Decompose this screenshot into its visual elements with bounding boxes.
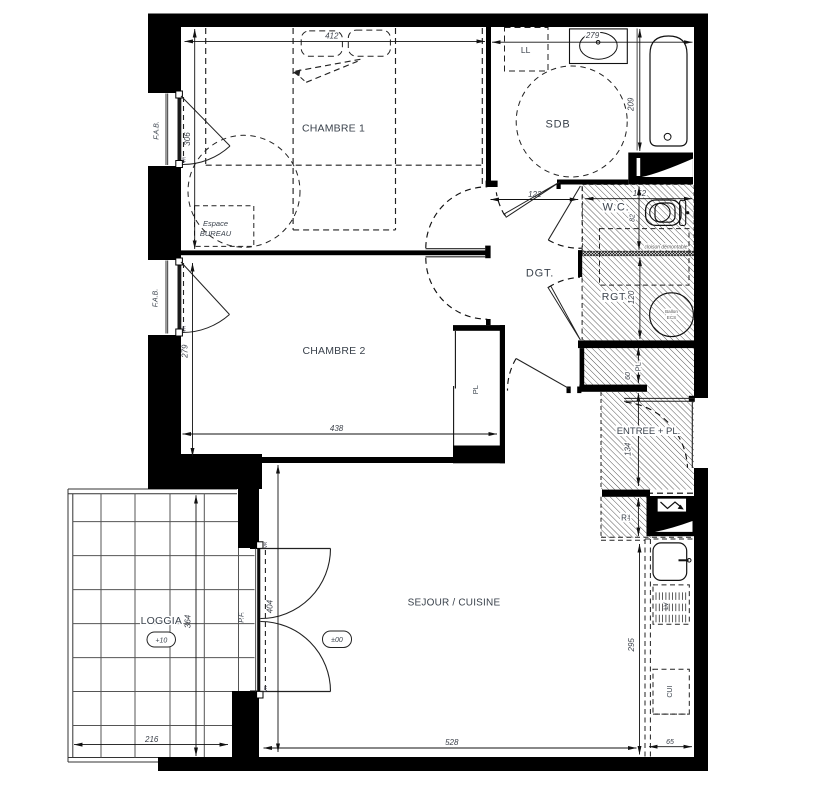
svg-text:60: 60: [625, 372, 632, 380]
svg-text:VR: VR: [182, 325, 187, 332]
svg-text:279: 279: [181, 344, 190, 359]
svg-text:209: 209: [626, 97, 635, 112]
svg-text:R: R: [621, 514, 627, 523]
svg-text:82: 82: [630, 214, 637, 222]
svg-text:VR: VR: [263, 541, 268, 548]
svg-text:LL: LL: [521, 45, 531, 55]
svg-text:PL: PL: [634, 362, 643, 371]
svg-text:412: 412: [325, 31, 339, 40]
svg-text:65: 65: [666, 739, 674, 746]
svg-text:W.C.: W.C.: [602, 202, 629, 214]
svg-text:122: 122: [528, 190, 542, 199]
svg-text:+10: +10: [155, 637, 167, 644]
svg-text:528: 528: [445, 738, 459, 747]
svg-text:CHAMBRE 1: CHAMBRE 1: [302, 123, 365, 135]
svg-text:216: 216: [144, 735, 159, 744]
svg-text:SEJOUR / CUISINE: SEJOUR / CUISINE: [408, 598, 501, 609]
svg-text:LOGGIA: LOGGIA: [141, 615, 182, 627]
svg-text:ECS: ECS: [667, 315, 676, 320]
svg-text:PL: PL: [471, 385, 480, 394]
svg-text:SDB: SDB: [545, 119, 570, 131]
svg-text:LV: LV: [663, 602, 670, 610]
svg-text:404: 404: [265, 599, 274, 613]
svg-text:±00: ±00: [331, 637, 343, 644]
svg-text:364: 364: [184, 614, 193, 628]
svg-text:Ballon: Ballon: [665, 309, 678, 314]
svg-text:RGT: RGT: [602, 291, 627, 303]
svg-text:Espace: Espace: [203, 219, 228, 228]
svg-text:134: 134: [623, 442, 632, 456]
svg-text:120: 120: [627, 290, 636, 304]
svg-text:306: 306: [183, 132, 192, 146]
svg-text:ENTREE + PL.: ENTREE + PL.: [617, 426, 681, 437]
svg-text:CUI: CUI: [667, 686, 674, 698]
svg-text:F.A.B.: F.A.B.: [153, 289, 160, 308]
svg-text:VR: VR: [263, 685, 268, 692]
svg-text:F.A.B.: F.A.B.: [154, 121, 161, 140]
svg-text:BUREAU: BUREAU: [200, 229, 232, 238]
svg-text:cloison démontable: cloison démontable: [644, 245, 687, 251]
svg-text:P.F.: P.F.: [238, 612, 245, 623]
svg-text:CHAMBRE 2: CHAMBRE 2: [302, 345, 365, 357]
svg-text:295: 295: [627, 638, 636, 653]
svg-text:438: 438: [330, 424, 344, 433]
svg-text:279: 279: [585, 31, 600, 40]
svg-text:VR: VR: [182, 156, 187, 163]
svg-text:152: 152: [633, 189, 647, 198]
svg-text:DGT.: DGT.: [526, 268, 554, 280]
